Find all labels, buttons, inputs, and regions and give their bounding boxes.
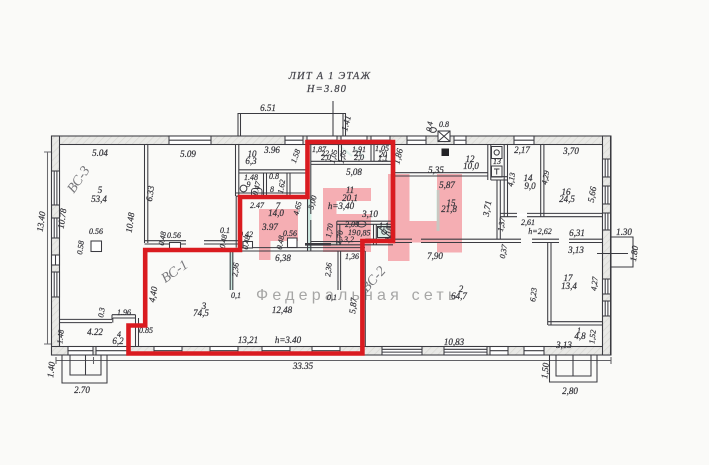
svg-text:3,70: 3,70	[562, 146, 579, 156]
svg-text:64,7: 64,7	[451, 291, 467, 301]
svg-text:2,61: 2,61	[521, 218, 535, 227]
svg-text:2,0: 2,0	[354, 153, 364, 162]
svg-text:1,1: 1,1	[378, 154, 388, 163]
svg-text:h=3,40: h=3,40	[328, 201, 355, 211]
svg-text:2,36: 2,36	[230, 262, 240, 277]
svg-text:1,36: 1,36	[345, 252, 359, 261]
svg-text:h=2,62: h=2,62	[528, 227, 551, 236]
svg-text:5.04: 5.04	[92, 148, 108, 158]
svg-text:0,1: 0,1	[327, 293, 337, 302]
svg-text:2,80: 2,80	[562, 386, 578, 396]
svg-text:9,0: 9,0	[524, 181, 536, 191]
svg-text:21,8: 21,8	[441, 204, 457, 214]
svg-text:5.09: 5.09	[180, 149, 196, 159]
svg-text:0.4: 0.4	[424, 121, 435, 132]
svg-text:0,1: 0,1	[231, 291, 241, 300]
svg-text:13,21: 13,21	[238, 335, 258, 345]
svg-text:1,52: 1,52	[587, 329, 597, 344]
svg-text:0.3: 0.3	[96, 307, 107, 318]
svg-text:10,83: 10,83	[444, 337, 465, 347]
svg-text:10,0: 10,0	[463, 161, 479, 171]
svg-text:3,13: 3,13	[555, 340, 572, 350]
svg-text:2,36: 2,36	[323, 262, 333, 277]
svg-text:4,27: 4,27	[589, 275, 600, 291]
svg-text:0.1: 0.1	[220, 226, 230, 235]
svg-text:1.30: 1.30	[616, 227, 632, 237]
svg-text:5,35: 5,35	[428, 165, 444, 175]
svg-text:0.56: 0.56	[89, 227, 103, 236]
svg-text:3,10: 3,10	[361, 209, 378, 219]
svg-text:74,5: 74,5	[193, 308, 209, 318]
svg-text:0.56: 0.56	[167, 231, 181, 240]
svg-text:13: 13	[493, 157, 501, 166]
svg-text:3,13: 3,13	[567, 245, 584, 255]
svg-text:4.22: 4.22	[87, 327, 103, 337]
svg-text:0,85: 0,85	[357, 229, 371, 238]
svg-text:0.8: 0.8	[439, 120, 449, 129]
svg-text:6,3: 6,3	[245, 156, 257, 166]
svg-text:9: 9	[247, 180, 251, 189]
svg-text:2.70: 2.70	[74, 385, 90, 395]
svg-text:5,08: 5,08	[346, 167, 362, 177]
svg-text:12,48: 12,48	[272, 305, 293, 315]
svg-text:8: 8	[270, 185, 274, 194]
svg-text:6,31: 6,31	[569, 228, 585, 238]
svg-text:1,50: 1,50	[539, 362, 551, 379]
svg-text:5,87: 5,87	[347, 297, 359, 314]
svg-text:Н=3.80: Н=3.80	[306, 84, 347, 95]
svg-text:1.96: 1.96	[117, 308, 131, 317]
svg-text:h=3.40: h=3.40	[275, 335, 302, 345]
svg-text:6,23: 6,23	[528, 287, 538, 302]
svg-text:7,90: 7,90	[427, 251, 443, 261]
svg-text:14,0: 14,0	[268, 208, 284, 218]
svg-text:2.47: 2.47	[250, 201, 265, 210]
svg-text:13,4: 13,4	[561, 281, 577, 291]
svg-text:3.96: 3.96	[263, 145, 280, 155]
svg-text:4,8: 4,8	[574, 331, 586, 341]
svg-text:6,2: 6,2	[112, 336, 124, 346]
svg-text:53,4: 53,4	[91, 194, 107, 204]
svg-text:24,5: 24,5	[559, 194, 575, 204]
svg-text:2,17: 2,17	[514, 145, 530, 155]
svg-text:3,2: 3,2	[343, 235, 354, 244]
svg-text:ЛИТ А 1 ЭТАЖ: ЛИТ А 1 ЭТАЖ	[288, 71, 372, 82]
svg-text:3.97: 3.97	[261, 222, 278, 232]
svg-text:1.40: 1.40	[45, 361, 57, 378]
svg-text:6,38: 6,38	[275, 253, 291, 263]
svg-text:1.48: 1.48	[55, 329, 65, 344]
svg-text:6.51: 6.51	[260, 103, 276, 113]
svg-text:33.35: 33.35	[292, 361, 314, 371]
svg-text:5,87: 5,87	[439, 180, 455, 190]
